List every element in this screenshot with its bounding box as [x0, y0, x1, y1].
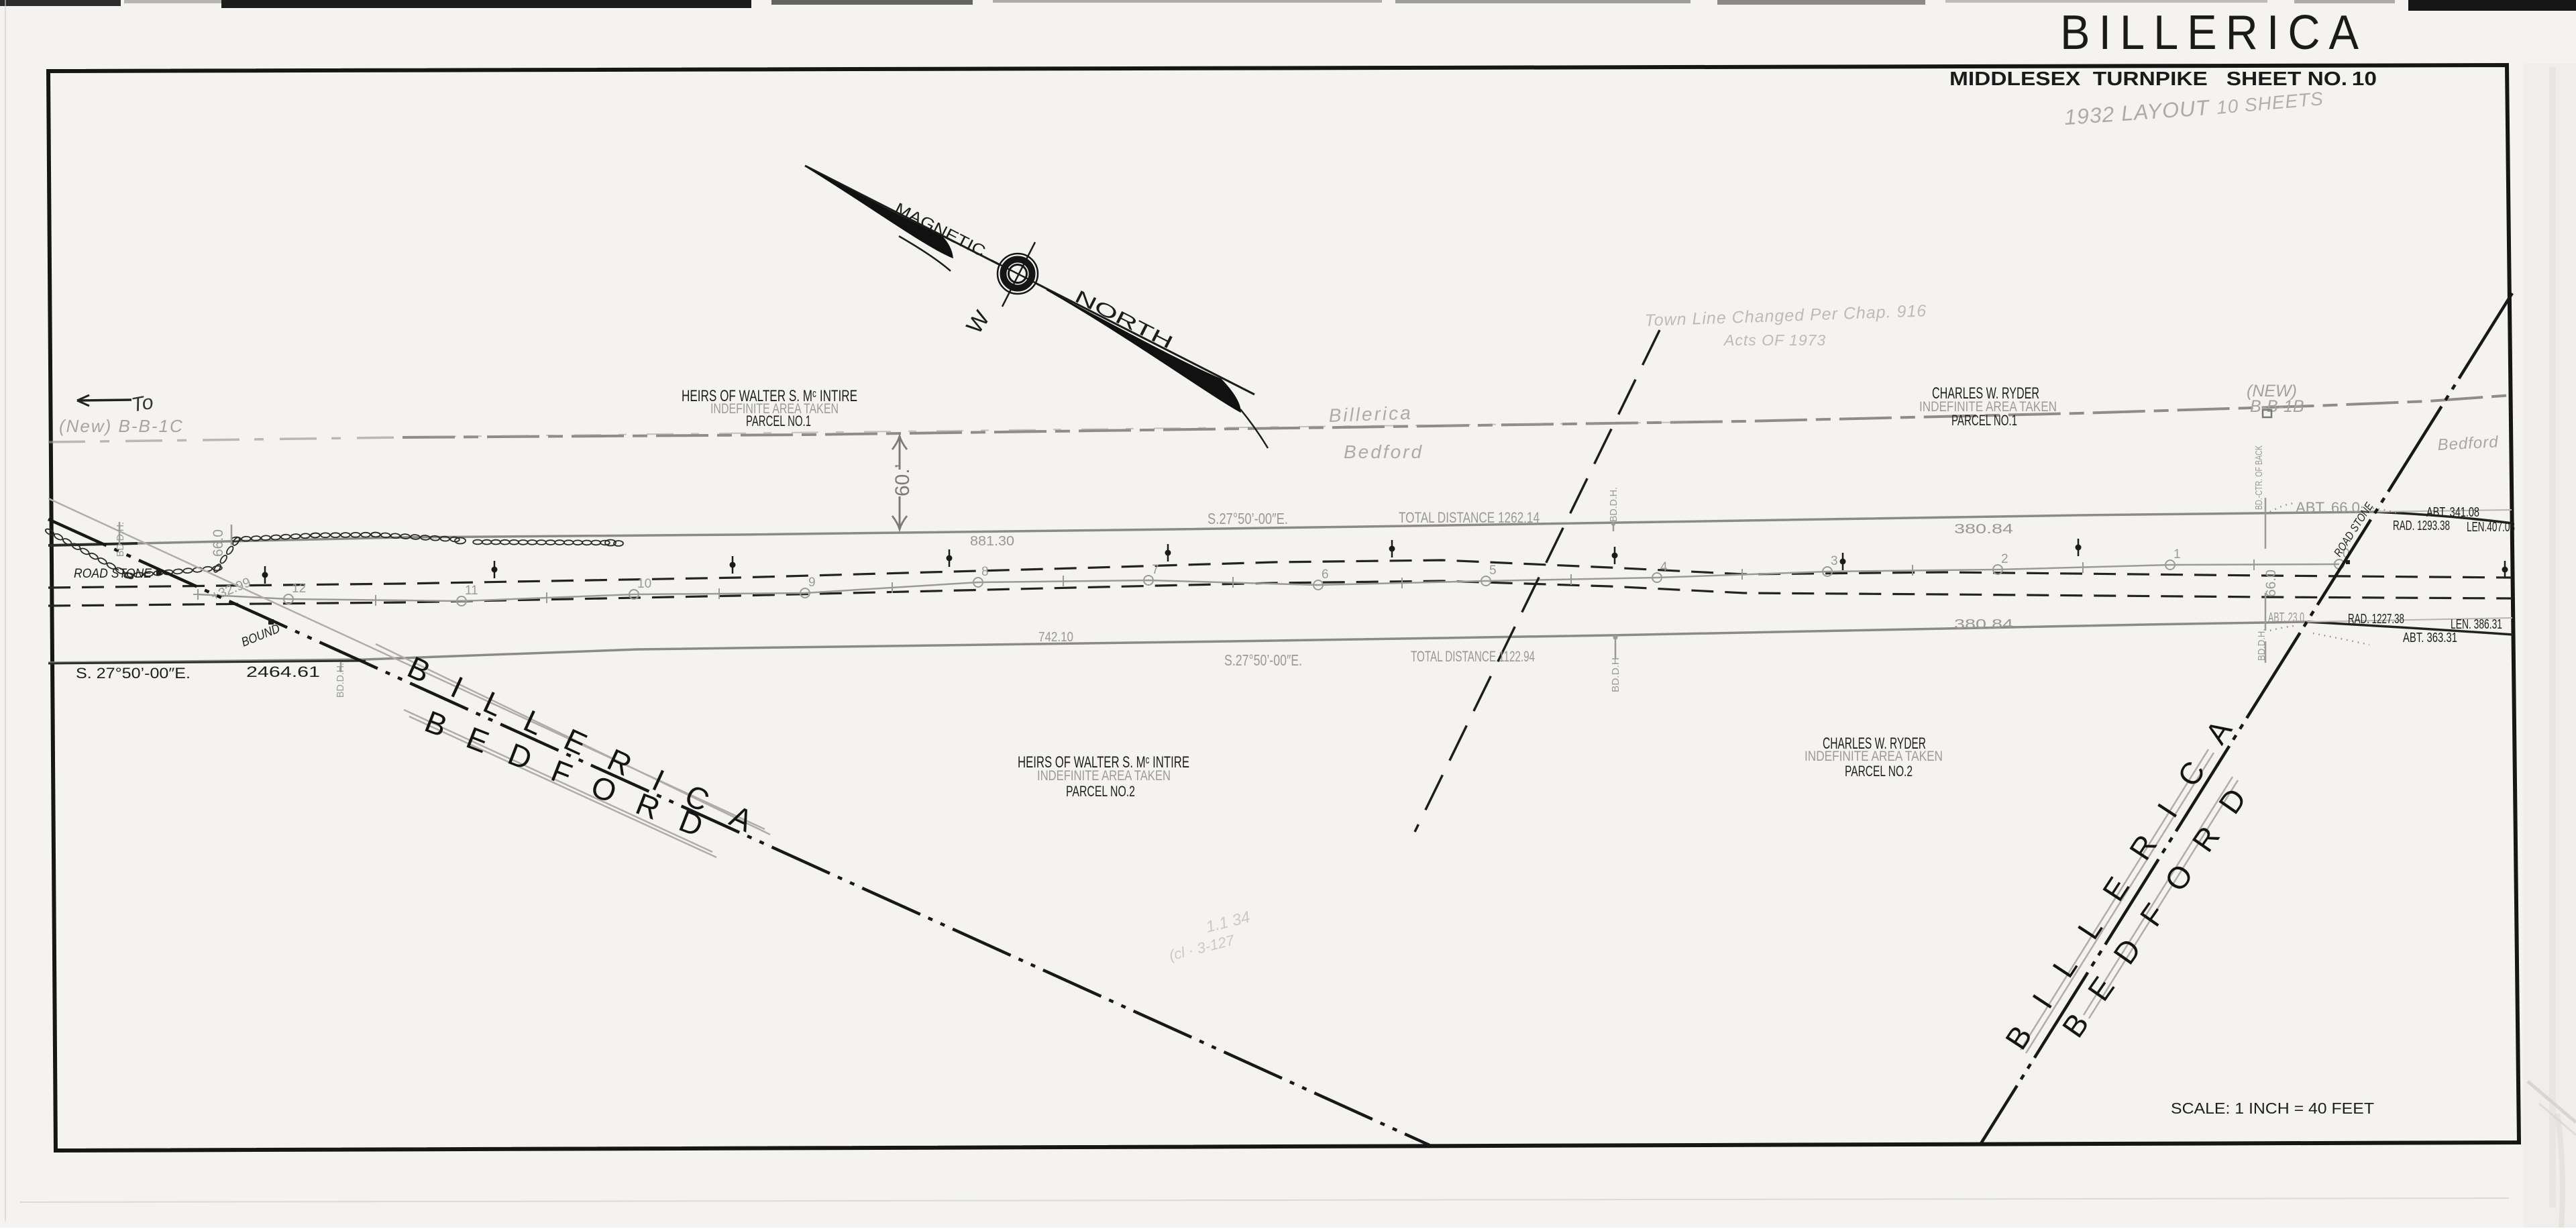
svg-text:TOTAL DISTANCE 1122.94: TOTAL DISTANCE 1122.94 — [1411, 648, 1535, 665]
svg-text:11: 11 — [465, 584, 478, 598]
svg-text:1: 1 — [2173, 547, 2181, 561]
svg-text:INDEFINITE AREA TAKEN: INDEFINITE AREA TAKEN — [1037, 768, 1171, 784]
svg-text:10: 10 — [637, 577, 651, 591]
svg-text:6: 6 — [1322, 568, 1329, 582]
svg-text:380.84: 380.84 — [1954, 617, 2013, 632]
svg-text:Acts OF 1973: Acts OF 1973 — [1723, 331, 1826, 349]
svg-text:PARCEL NO.2: PARCEL NO.2 — [1845, 763, 1913, 780]
svg-text:LEN.407.08: LEN.407.08 — [2467, 520, 2515, 535]
svg-text:ABT. 66.0: ABT. 66.0 — [2296, 499, 2360, 516]
svg-text:2464.61: 2464.61 — [246, 663, 320, 680]
svg-text:2: 2 — [2001, 552, 2008, 566]
svg-text:8: 8 — [981, 565, 989, 579]
svg-text:Billerica: Billerica — [1328, 403, 1413, 426]
svg-text:BD.-CTR. OF BACK: BD.-CTR. OF BACK — [2253, 445, 2265, 510]
svg-text:LEN. 386.31: LEN. 386.31 — [2451, 617, 2502, 632]
svg-text:SCALE: 1 INCH = 40 FEET: SCALE: 1 INCH = 40 FEET — [2171, 1100, 2374, 1117]
svg-text:9: 9 — [808, 576, 816, 590]
svg-text:Bedford: Bedford — [2437, 433, 2499, 454]
svg-text:BD.D.H.: BD.D.H. — [115, 522, 126, 557]
svg-text:66.0: 66.0 — [2263, 570, 2279, 597]
svg-text:ABT. 341.08: ABT. 341.08 — [2426, 505, 2479, 520]
svg-text:TOTAL DISTANCE 1262.14: TOTAL DISTANCE 1262.14 — [1399, 509, 1540, 526]
svg-text:380.84: 380.84 — [1954, 522, 2013, 537]
svg-text:MIDDLESEX TURNPIKE SHEET NO: MIDDLESEX TURNPIKE SHEET NO. 10 — [1949, 68, 2377, 90]
svg-text:7: 7 — [1152, 563, 1159, 577]
svg-text:PARCEL NO.1: PARCEL NO.1 — [1951, 412, 2017, 429]
svg-text:66.0: 66.0 — [211, 529, 226, 557]
svg-text:RAD. 1227.38: RAD. 1227.38 — [2348, 612, 2404, 627]
svg-text:3: 3 — [1831, 554, 1838, 568]
svg-text:ABT. 23.0: ABT. 23.0 — [2268, 610, 2304, 625]
svg-text:60.’: 60.’ — [892, 464, 914, 496]
svg-text:742.10: 742.10 — [1038, 630, 1073, 645]
svg-text:B-B-1B: B-B-1B — [2250, 397, 2304, 416]
svg-text:RAD. 1293.38: RAD. 1293.38 — [2393, 519, 2450, 533]
svg-text:4: 4 — [1660, 560, 1668, 574]
svg-text:PARCEL NO.1: PARCEL NO.1 — [746, 413, 811, 429]
svg-text:(New) B-B-1C: (New) B-B-1C — [59, 416, 184, 436]
svg-text:BD.D.H.: BD.D.H. — [1608, 487, 1619, 522]
svg-text:S. 27°50’-00″E.: S. 27°50’-00″E. — [76, 665, 191, 682]
svg-text:BD.D.H: BD.D.H — [1610, 657, 1621, 692]
svg-text:INDEFINITE AREA TAKEN: INDEFINITE AREA TAKEN — [1805, 749, 1943, 764]
svg-text:To: To — [129, 391, 155, 417]
svg-text:BILLERICA: BILLERICA — [2060, 6, 2367, 60]
svg-text:S.27°50’-00″E.: S.27°50’-00″E. — [1224, 651, 1302, 669]
svg-text:S.27°50’-00″E.: S.27°50’-00″E. — [1207, 510, 1288, 527]
svg-text:PARCEL NO.2: PARCEL NO.2 — [1066, 783, 1135, 800]
svg-text:ROAD STONE: ROAD STONE — [74, 567, 152, 581]
svg-text:Bedford: Bedford — [1344, 441, 1424, 462]
svg-text:ABT. 363.31: ABT. 363.31 — [2403, 631, 2457, 645]
svg-text:5: 5 — [1489, 564, 1497, 578]
svg-text:881.30: 881.30 — [970, 534, 1014, 549]
svg-text:12: 12 — [292, 582, 306, 596]
